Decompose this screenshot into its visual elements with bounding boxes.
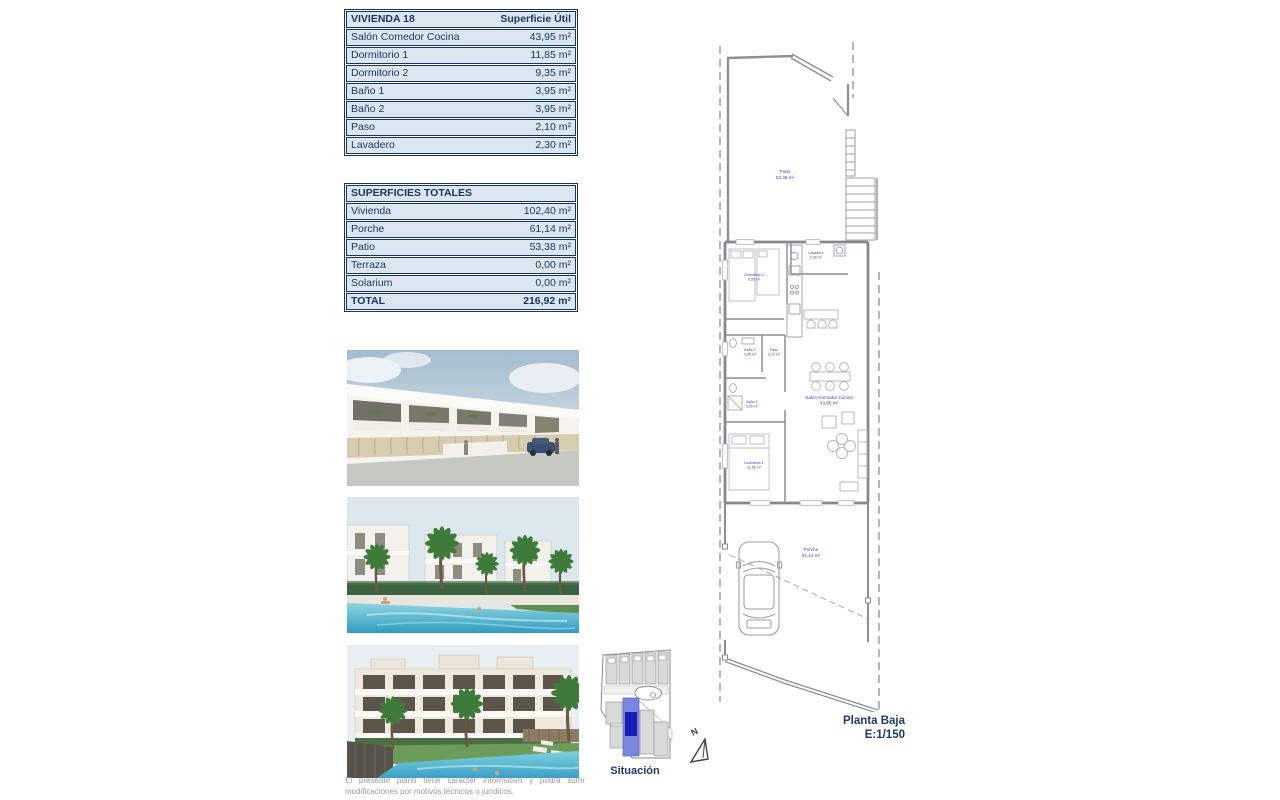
- situacion-map: [596, 646, 676, 769]
- dormitorio2-label: Dormitorio 2: [744, 273, 764, 277]
- table-title: VIVIENDA 18: [351, 13, 415, 25]
- salon-area: 43,95 m²: [820, 400, 839, 405]
- salon-label: Salón Comedor Cocina: [805, 395, 853, 400]
- table-row: Dormitorio 2 9,35 m²: [346, 65, 576, 82]
- table-row: Lavadero 2,30 m²: [346, 137, 576, 154]
- row-value: 9,35 m²: [535, 67, 571, 79]
- row-label: Salón Comedor Cocina: [351, 31, 460, 43]
- row-value: 53,38 m²: [530, 241, 571, 253]
- patio-area: 53,38 m²: [776, 175, 795, 180]
- table-row: Baño 1 3,95 m²: [346, 83, 576, 100]
- render-photo-terrace-houses: [347, 350, 579, 486]
- table-header-row: VIVIENDA 18 Superficie Útil: [346, 11, 576, 28]
- row-value: 43,95 m²: [530, 31, 571, 43]
- north-letter: N: [689, 726, 699, 738]
- row-label: Dormitorio 2: [351, 67, 408, 79]
- table-row: Patio 53,38 m²: [346, 239, 576, 256]
- porch-walls: [725, 503, 878, 712]
- porche-area: 61,14 m²: [802, 553, 821, 558]
- patio-walls: [727, 54, 848, 241]
- dining-set: [810, 363, 850, 391]
- row-label: Vivienda: [351, 205, 391, 217]
- row-label: Baño 1: [351, 85, 384, 97]
- bathroom2-fixtures: [730, 338, 754, 347]
- table-title: SUPERFICIES TOTALES: [351, 187, 472, 199]
- table-row: Paso 2,10 m²: [346, 119, 576, 136]
- lounge-set: [822, 412, 867, 491]
- bathroom1-fixtures: [728, 384, 742, 410]
- table-superficie-util: VIVIENDA 18 Superficie Útil Salón Comedo…: [344, 9, 578, 156]
- table-row: Solarium 0,00 m²: [346, 275, 576, 292]
- row-label: Patio: [351, 241, 375, 253]
- row-value: 0,00 m²: [535, 259, 571, 271]
- lavadero-label: Lavadero: [809, 251, 824, 255]
- bano1-label: Baño 1: [746, 400, 757, 404]
- table-row: Terraza 0,00 m²: [346, 257, 576, 274]
- table-superficies-totales: SUPERFICIES TOTALES Vivienda 102,40 m² P…: [344, 183, 578, 312]
- washer: [834, 245, 845, 256]
- total-value: 216,92 m²: [523, 295, 571, 307]
- row-value: 0,00 m²: [535, 277, 571, 289]
- table-row: Baño 2 3,95 m²: [346, 101, 576, 118]
- bano1-area: 3,95 m²: [746, 405, 759, 409]
- floor-plan: Patio 53,38 m²: [712, 42, 907, 717]
- row-label: Lavadero: [351, 139, 395, 151]
- dormitorio1-label: Dormitorio 1: [744, 461, 764, 465]
- row-value: 11,85 m²: [530, 49, 571, 61]
- breakfast-bar: [804, 310, 838, 328]
- table-row: Salón Comedor Cocina 43,95 m²: [346, 29, 576, 46]
- row-label: Baño 2: [351, 103, 384, 115]
- row-value: 2,30 m²: [535, 139, 571, 151]
- disclaimer-text: El presente plano tiene carácter informa…: [345, 776, 585, 798]
- row-value: 61,14 m²: [530, 223, 571, 235]
- porche-label: Porche: [804, 547, 819, 552]
- total-label: TOTAL: [351, 295, 385, 307]
- situacion-label: Situación: [585, 765, 685, 777]
- row-label: Solarium: [351, 277, 392, 289]
- row-value: 102,40 m²: [524, 205, 571, 217]
- render-photo-apartments: [347, 645, 579, 778]
- window-marks: [723, 240, 854, 506]
- highlighted-unit: [625, 712, 637, 736]
- paso-area: 2,10 m²: [768, 353, 781, 357]
- table-total-row: TOTAL 216,92 m²: [346, 293, 576, 310]
- north-arrow: N: [683, 724, 715, 773]
- exterior-staircase: [846, 130, 877, 240]
- dormitorio2-area: 9,35 m²: [748, 278, 761, 282]
- table-row: Vivienda 102,40 m²: [346, 203, 576, 220]
- bano2-label: Baño 2: [744, 348, 755, 352]
- dormitorio1-area: 11,85 m²: [747, 466, 762, 470]
- car-top-view: [737, 542, 782, 635]
- kitchen-counter: [787, 245, 802, 337]
- plan-caption: Planta Baja E:1/150: [770, 714, 905, 743]
- plan-scale: E:1/150: [770, 728, 905, 742]
- row-label: Dormitorio 1: [351, 49, 408, 61]
- table-row: Dormitorio 1 11,85 m²: [346, 47, 576, 64]
- render-photo-pool: [347, 497, 579, 633]
- patio-label: Patio: [780, 169, 791, 174]
- row-label: Porche: [351, 223, 384, 235]
- porch-posts: [723, 544, 871, 660]
- row-value: 3,95 m²: [535, 85, 571, 97]
- lavadero-area: 2,30 m²: [810, 256, 823, 260]
- row-label: Paso: [351, 121, 375, 133]
- row-value: 3,95 m²: [535, 103, 571, 115]
- bano2-area: 3,95 m²: [744, 353, 757, 357]
- table-row: Porche 61,14 m²: [346, 221, 576, 238]
- row-label: Terraza: [351, 259, 386, 271]
- paso-label: Paso: [770, 348, 778, 352]
- brochure-page: VIVIENDA 18 Superficie Útil Salón Comedo…: [0, 0, 1280, 800]
- row-value: 2,10 m²: [535, 121, 571, 133]
- table-header-row: SUPERFICIES TOTALES: [346, 185, 576, 202]
- table-header-right: Superficie Útil: [500, 13, 571, 25]
- plan-title: Planta Baja: [770, 714, 905, 728]
